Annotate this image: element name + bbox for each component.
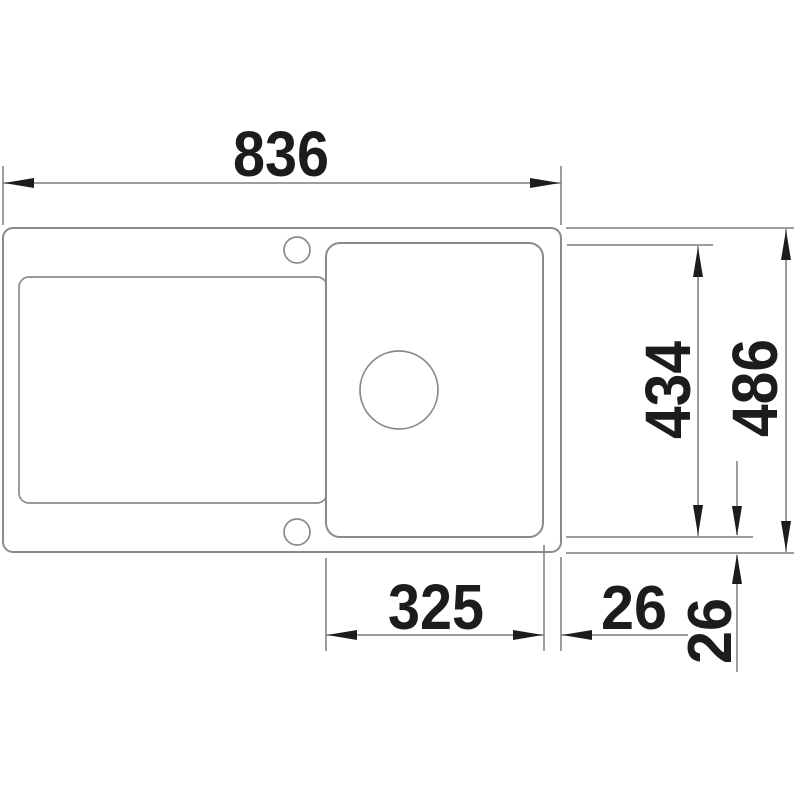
label-overall-height: 486 (719, 339, 791, 437)
sink-dimension-diagram: 836 325 26 434 486 26 (0, 0, 800, 800)
sink-shapes (3, 228, 561, 552)
arrow-434-bottom-icon (693, 505, 703, 535)
label-bowl-width: 325 (388, 571, 484, 643)
arrow-325-right-icon (513, 630, 543, 640)
label-bowl-height: 434 (632, 341, 704, 439)
arrow-486-top-icon (781, 230, 791, 260)
label-gap-right: 26 (601, 574, 667, 643)
drawing-svg: 836 325 26 434 486 26 (0, 0, 800, 800)
tap-hole-top (284, 237, 310, 263)
arrow-26-horizontal-icon (562, 630, 592, 640)
label-gap-bottom: 26 (676, 598, 745, 664)
drainboard-outline (19, 277, 327, 503)
arrow-26-vertical-down-icon (732, 506, 742, 536)
arrow-486-bottom-icon (781, 521, 791, 551)
arrow-836-right-icon (530, 178, 560, 188)
tap-hole-bottom (284, 519, 310, 545)
arrow-434-top-icon (693, 247, 703, 277)
arrow-836-left-icon (4, 178, 34, 188)
arrow-325-left-icon (327, 630, 357, 640)
drain-hole (360, 351, 438, 429)
arrow-26-vertical-up-icon (732, 554, 742, 584)
label-overall-width: 836 (233, 118, 329, 190)
